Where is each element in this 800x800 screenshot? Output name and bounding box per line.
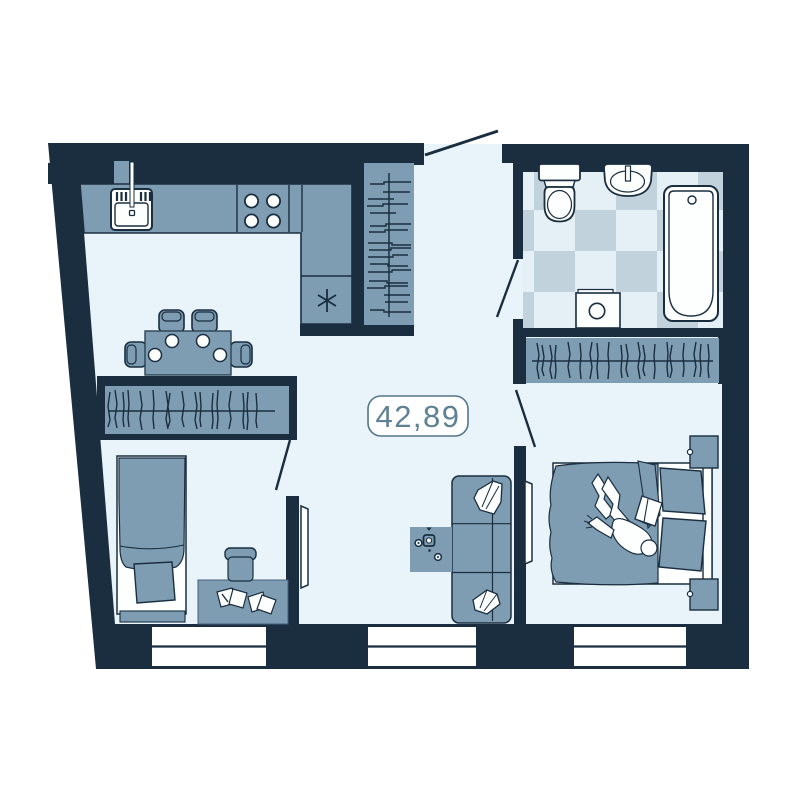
svg-text:42,89: 42,89 [375, 399, 460, 434]
